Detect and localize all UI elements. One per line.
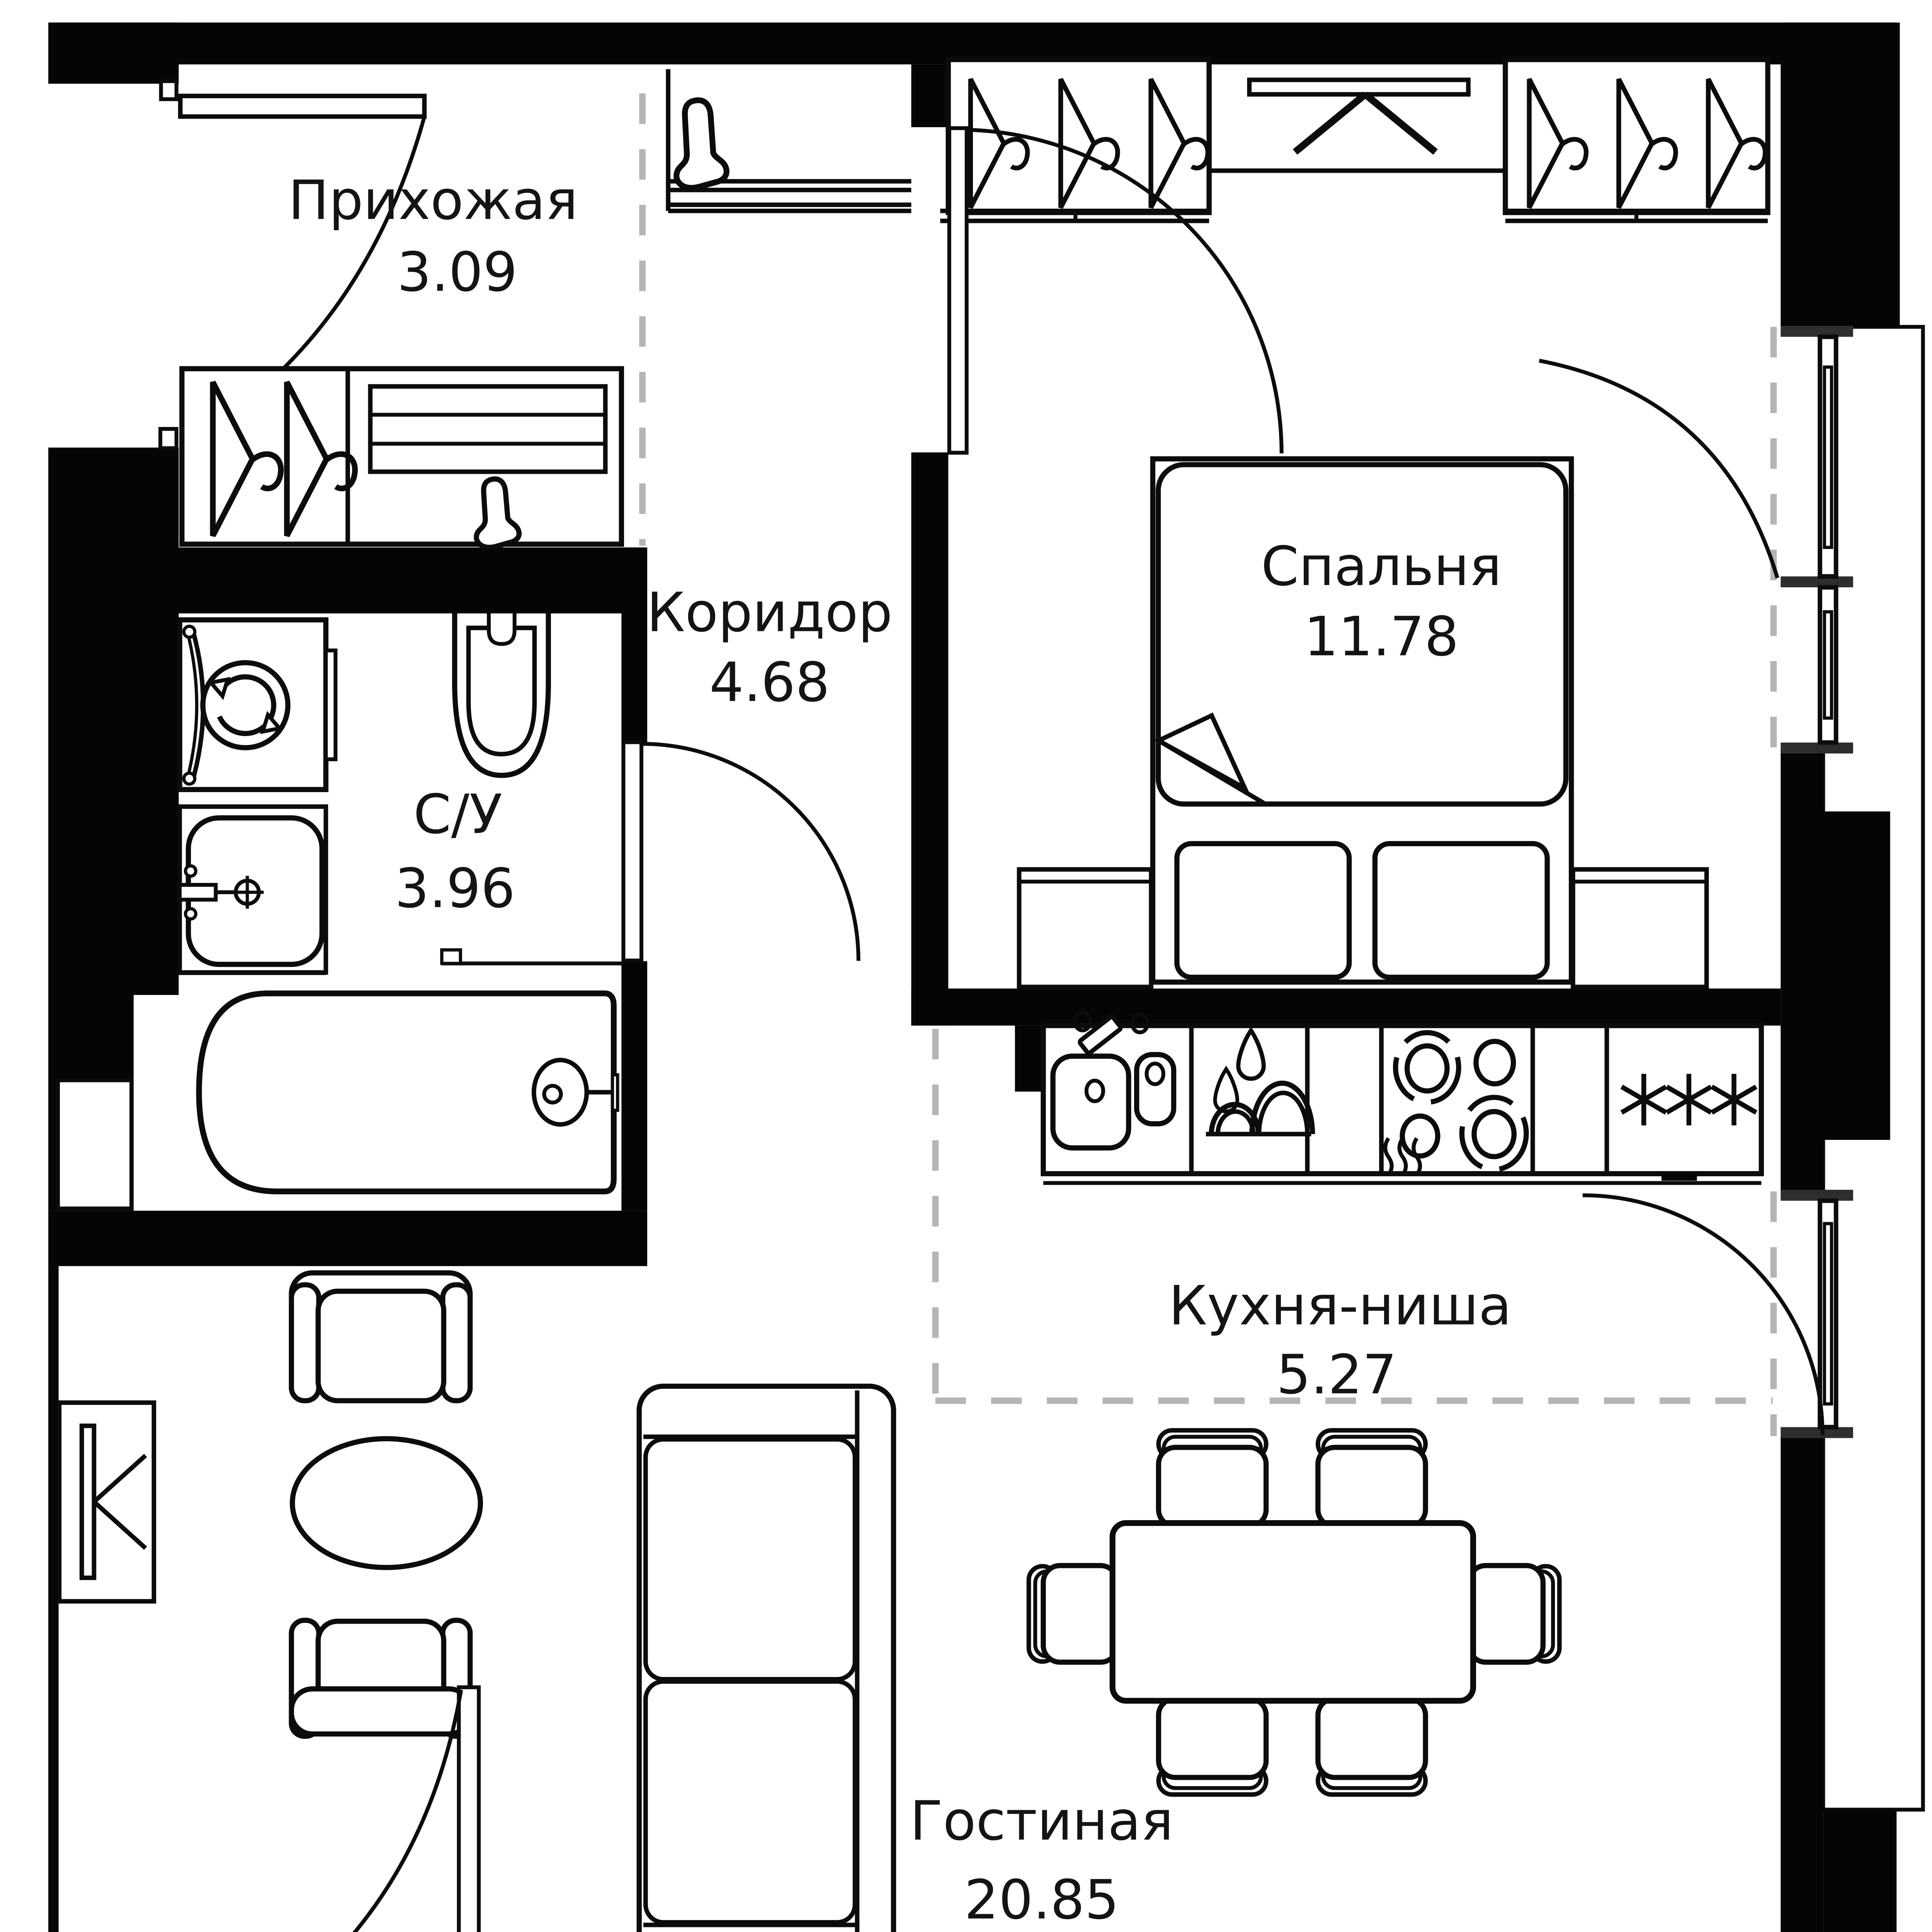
sofa-cushion — [646, 1682, 855, 1922]
nightstand-right — [1573, 869, 1707, 987]
tv-icon — [82, 1426, 94, 1578]
sofa — [639, 1386, 893, 1932]
floor-plan: Прихожая 3.09 Коридор 4.68 С/У 3.96 Спал… — [0, 0, 1932, 1932]
shelf-stand-icon — [1209, 60, 1505, 213]
room-label-bathroom: С/У — [413, 783, 502, 846]
washing-machine-icon — [180, 620, 335, 789]
shoe-cabinet — [668, 69, 911, 211]
room-label-kitchen: Кухня-ниша — [1168, 1274, 1512, 1337]
door-jamb — [160, 429, 177, 448]
armchair-bottom — [291, 1620, 470, 1736]
flush-button — [489, 613, 515, 644]
room-area-corridor: 4.68 — [709, 651, 830, 714]
bed-foot-cushion — [1375, 844, 1547, 977]
bathtub-icon — [199, 993, 617, 1191]
dining-chair — [1469, 1566, 1560, 1662]
dining-chair — [1158, 1430, 1266, 1526]
kitchen-counter — [1043, 1012, 1761, 1183]
bedroom-windows — [1539, 326, 1853, 753]
room-area-living: 20.85 — [964, 1869, 1119, 1932]
round-table — [293, 1439, 481, 1567]
faucet — [180, 885, 216, 900]
room-area-bedroom: 11.78 — [1304, 605, 1459, 668]
dining-set — [1029, 1430, 1559, 1794]
dining-table — [1112, 1523, 1473, 1701]
room-label-living: Гостиная — [910, 1790, 1173, 1853]
door-jamb — [161, 81, 177, 99]
room-area-hallway: 3.09 — [397, 241, 517, 304]
nightstand-left — [1019, 869, 1151, 987]
dining-chair — [1318, 1430, 1425, 1526]
bathroom-sink-icon — [180, 806, 326, 972]
tv-console — [59, 1403, 154, 1601]
window-swing-arc — [1539, 361, 1777, 578]
dining-chair — [1318, 1699, 1425, 1794]
shelf-stack-icon — [370, 386, 605, 472]
dining-chair — [1029, 1566, 1117, 1662]
room-area-kitchen: 5.27 — [1276, 1344, 1397, 1406]
hallway-closet — [182, 369, 621, 547]
boot-icon — [677, 100, 727, 188]
sofa-cushion — [646, 1439, 855, 1679]
room-area-bathroom: 3.96 — [395, 857, 515, 920]
bathroom-door — [623, 742, 858, 961]
bedroom-closet — [940, 60, 1768, 221]
dining-chair — [1158, 1699, 1266, 1794]
door-swing-arc — [641, 744, 859, 961]
room-label-hallway: Прихожая — [288, 169, 578, 232]
toilet-icon — [455, 613, 548, 775]
bed-foot-cushion — [1177, 844, 1349, 977]
room-label-corridor: Коридор — [647, 581, 893, 644]
room-label-bedroom: Спальня — [1261, 535, 1502, 598]
armchair-top — [291, 1273, 470, 1401]
